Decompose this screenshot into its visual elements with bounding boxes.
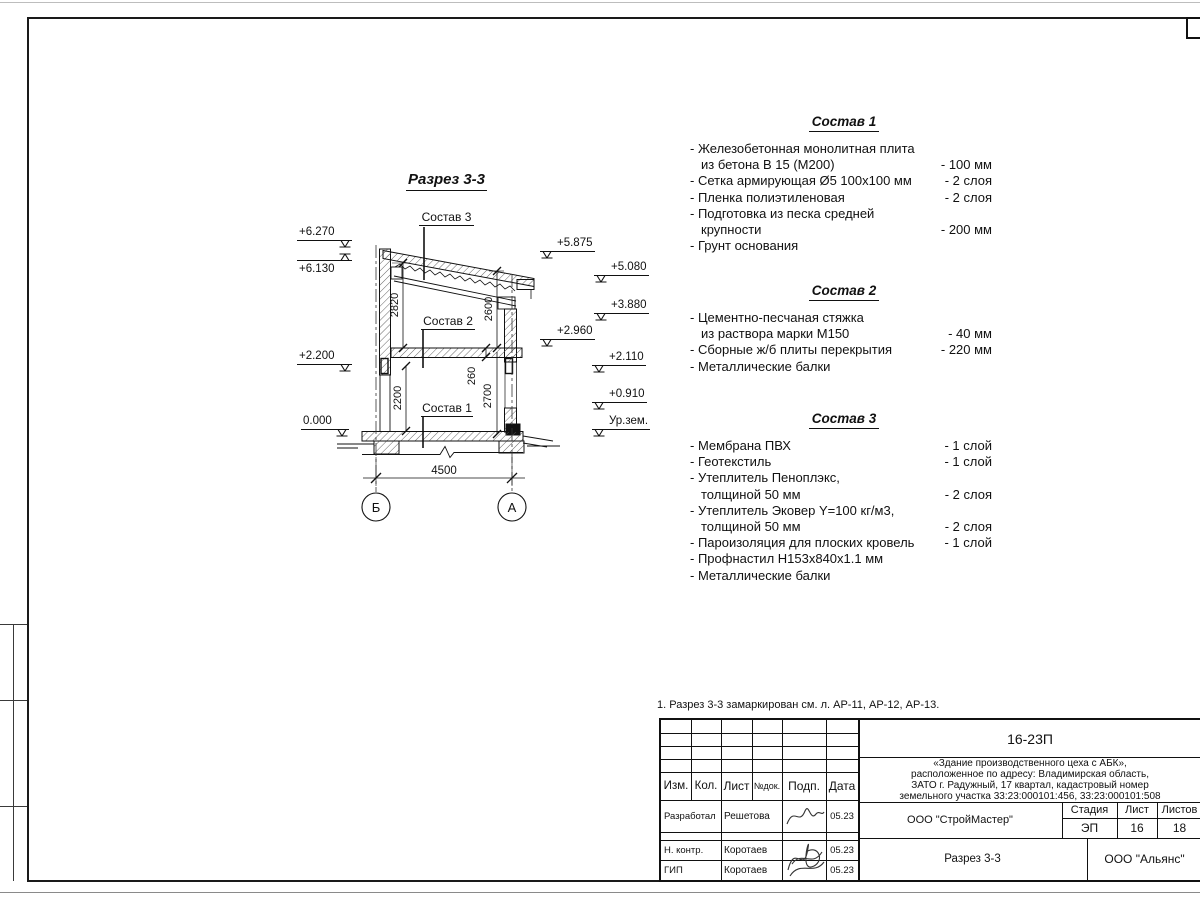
composition-list-1: Состав 1 - Железобетонная монолитная пли… [690,113,998,254]
section-title: Разрез 3-3 [406,171,487,191]
list-item: - Утеплитель Эковер Y=100 кг/м3, [690,503,998,519]
list-item: - Железобетонная монолитная плита [690,141,998,157]
tb-sheet-value: 16 [1117,818,1157,838]
section-drawing: Б А 4500 2820 2600 2200 260 2700 [280,200,660,530]
list-item: - Подготовка из песка средней [690,206,998,222]
tb-name-developer: Решетова [721,800,785,832]
tb-stage-value: ЭП [1062,818,1117,838]
tb-object-description: «Здание производственного цеха с АБК», р… [858,757,1200,802]
list-title: Состав 3 [809,411,879,429]
tb-header-ndok: №док. [752,772,782,800]
tb-company: ООО "Альянс" [1087,838,1200,880]
sheet-note: 1. Разрез 3-3 замаркирован см. л. АР-11,… [657,699,939,711]
tb-sheets-value: 18 [1157,818,1200,838]
tb-doc-number: 16-23П [858,720,1200,757]
axis-label-a: А [508,500,517,515]
axis-label-b: Б [372,500,381,515]
tb-sheet-label: Лист [1117,802,1157,818]
signature-developer [784,804,826,830]
roof [383,251,534,310]
dim-lower-left: 2200 [392,386,404,410]
list-item: из бетона В 15 (М200)- 100 мм [690,157,998,173]
tb-stage-label: Стадия [1062,802,1117,818]
page-bottom-edge [0,892,1200,893]
list-item: - Мембрана ПВХ- 1 слой [690,438,998,454]
dim-upper-right: 2600 [483,297,495,321]
list-item: - Сетка армирующая Ø5 100x100 мм- 2 слоя [690,173,998,189]
tb-role-gip: ГИП [661,860,724,880]
list-item: из раствора марки М150- 40 мм [690,326,998,342]
list-item: - Металлические балки [690,568,998,584]
tb-name-gip: Коротаев [721,860,785,880]
drawing-sheet: { "page": { "note": "1. Разрез 3-3 замар… [0,0,1200,900]
list-rows: - Цементно-песчаная стяжкаиз раствора ма… [690,310,998,375]
tb-header-list: Лист [721,772,752,800]
tb-sheet-title: Разрез 3-3 [858,838,1087,880]
tb-date-gip: 05.23 [826,860,858,880]
list-item: - Сборные ж/б плиты перекрытия- 220 мм [690,342,998,358]
page-top-edge [0,2,1200,3]
title-block: Изм. Кол. Лист №док. Подп. Дата Разработ… [659,718,1200,882]
dim-lower-right: 2700 [482,384,494,408]
list-item: крупности- 200 мм [690,222,998,238]
tb-header-izm: Изм. [661,772,691,800]
tb-role-developer: Разработал [661,800,724,832]
list-item: толщиной 50 мм- 2 слоя [690,519,998,535]
tb-header-kol: Кол. [691,772,721,800]
tb-role-ncontrol: Н. контр. [661,840,724,860]
list-item: - Утеплитель Пеноплэкс, [690,470,998,486]
composition-list-2: Состав 2 - Цементно-песчаная стяжкаиз ра… [690,282,998,375]
list-item: - Металлические балки [690,359,998,375]
tb-date-ncontrol: 05.23 [826,840,858,860]
list-item: - Геотекстиль- 1 слой [690,454,998,470]
frame-top [27,17,1200,19]
tb-header-podp: Подп. [782,772,826,800]
list-item: толщиной 50 мм- 2 слоя [690,487,998,503]
tb-header-data: Дата [826,772,858,800]
list-rows: - Железобетонная монолитная плитаиз бето… [690,141,998,254]
dim-upper-left: 2820 [389,293,401,317]
composition-list-3: Состав 3 - Мембрана ПВХ- 1 слой- Геотекс… [690,410,998,584]
list-item: - Профнастил Н153х840х1.1 мм [690,551,998,567]
list-item: - Грунт основания [690,238,998,254]
list-item: - Пароизоляция для плоских кровель- 1 сл… [690,535,998,551]
tb-contractor: ООО "СтройМастер" [858,802,1062,838]
list-title: Состав 2 [809,283,879,301]
dim-slab: 260 [466,367,478,385]
margin-strip-divider [13,624,14,881]
signature-ncontrol-gip [782,838,828,882]
list-item: - Цементно-песчаная стяжка [690,310,998,326]
tb-sheets-label: Листов [1157,802,1200,818]
list-item: - Пленка полиэтиленовая- 2 слоя [690,190,998,206]
list-title: Состав 1 [809,114,879,132]
dim-width: 4500 [431,465,457,477]
tb-name-ncontrol: Коротаев [721,840,785,860]
frame-left [27,17,29,882]
list-rows: - Мембрана ПВХ- 1 слой- Геотекстиль- 1 с… [690,438,998,584]
frame-corner-box [1186,17,1200,39]
tb-date-developer: 05.23 [826,800,858,832]
